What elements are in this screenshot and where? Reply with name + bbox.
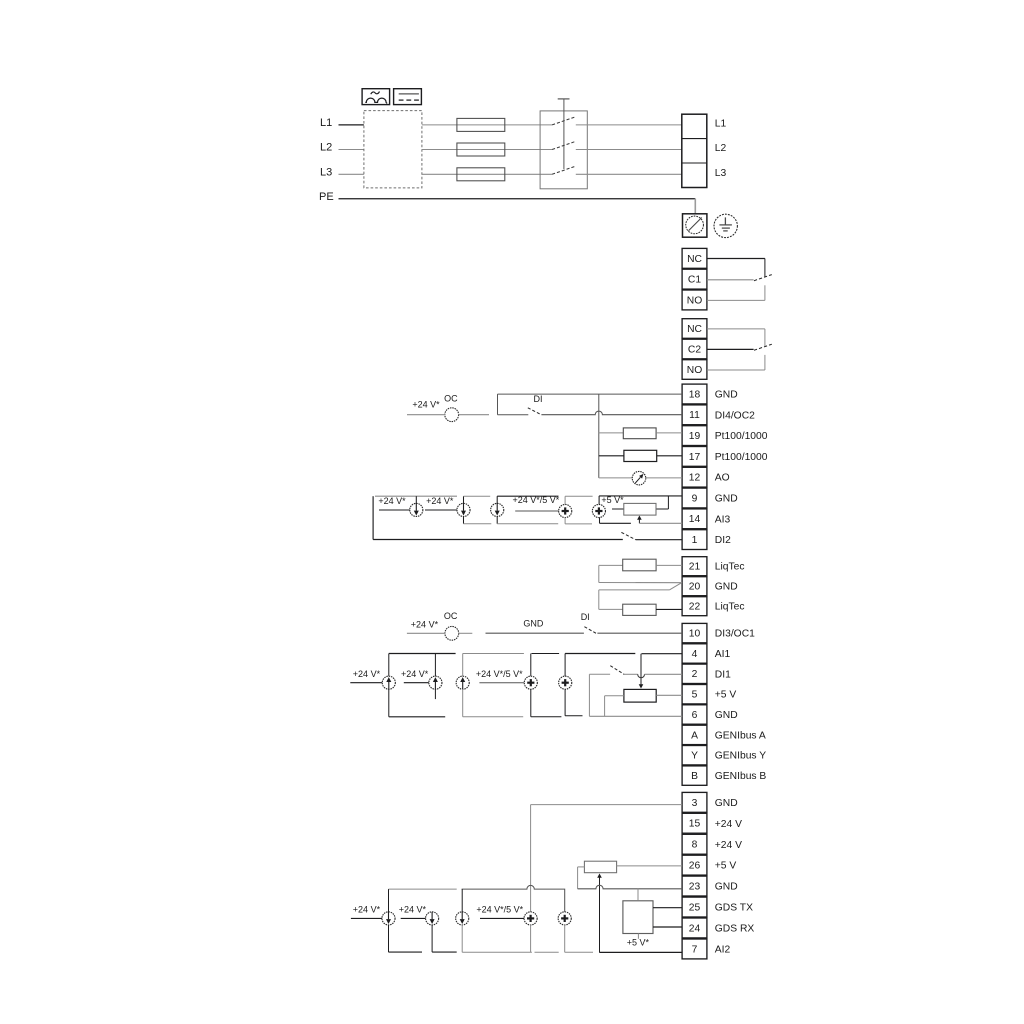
svg-text:GND: GND xyxy=(715,390,738,401)
svg-text:+5 V*: +5 V* xyxy=(627,938,650,948)
svg-text:22: 22 xyxy=(689,602,701,613)
svg-text:GND: GND xyxy=(715,494,738,505)
svg-text:4: 4 xyxy=(692,649,698,660)
svg-text:Y: Y xyxy=(691,751,698,762)
svg-text:+24 V*: +24 V* xyxy=(378,496,406,506)
svg-text:L3: L3 xyxy=(320,167,332,179)
svg-text:19: 19 xyxy=(689,431,701,442)
svg-text:A: A xyxy=(691,730,698,741)
svg-text:6: 6 xyxy=(692,710,698,721)
svg-text:12: 12 xyxy=(689,473,701,484)
svg-text:NO: NO xyxy=(687,365,702,376)
svg-text:GND: GND xyxy=(523,618,544,628)
svg-text:+24 V: +24 V xyxy=(715,840,742,851)
svg-text:2: 2 xyxy=(692,669,698,680)
svg-text:+24 V*/5 V*: +24 V*/5 V* xyxy=(476,669,523,679)
svg-text:+24 V*: +24 V* xyxy=(353,669,381,679)
svg-text:PE: PE xyxy=(319,191,334,203)
svg-text:GND: GND xyxy=(715,710,738,721)
svg-text:10: 10 xyxy=(689,629,701,640)
svg-text:9: 9 xyxy=(692,493,698,504)
svg-text:GND: GND xyxy=(715,798,738,809)
svg-text:LiqTec: LiqTec xyxy=(715,602,745,613)
svg-text:23: 23 xyxy=(689,881,701,892)
svg-text:+24 V*: +24 V* xyxy=(412,399,440,409)
svg-text:GENIbus B: GENIbus B xyxy=(715,771,767,782)
svg-text:AO: AO xyxy=(715,473,730,484)
svg-text:NO: NO xyxy=(687,295,702,306)
svg-text:Pt100/1000: Pt100/1000 xyxy=(715,431,768,442)
svg-text:GENIbus Y: GENIbus Y xyxy=(715,751,766,762)
svg-text:DI1: DI1 xyxy=(715,669,731,680)
svg-text:DI4/OC2: DI4/OC2 xyxy=(715,410,755,421)
svg-text:L1: L1 xyxy=(715,118,727,129)
svg-text:5: 5 xyxy=(692,690,698,701)
svg-text:+24 V*/5 V*: +24 V*/5 V* xyxy=(476,905,523,915)
svg-text:1: 1 xyxy=(692,535,698,546)
svg-text:+24 V*/5 V*: +24 V*/5 V* xyxy=(513,495,560,505)
svg-text:DI3/OC1: DI3/OC1 xyxy=(715,629,755,640)
svg-text:17: 17 xyxy=(689,452,701,463)
svg-text:L1: L1 xyxy=(320,117,332,129)
svg-text:L2: L2 xyxy=(715,143,727,154)
svg-text:NC: NC xyxy=(687,254,702,265)
svg-text:GDS RX: GDS RX xyxy=(715,923,755,934)
svg-text:20: 20 xyxy=(689,582,701,593)
svg-text:AI1: AI1 xyxy=(715,649,731,660)
svg-text:C2: C2 xyxy=(688,344,701,355)
svg-text:14: 14 xyxy=(689,514,701,525)
svg-text:+24 V*: +24 V* xyxy=(426,496,454,506)
svg-text:OC: OC xyxy=(444,611,458,621)
svg-text:25: 25 xyxy=(689,902,701,913)
svg-text:3: 3 xyxy=(692,798,698,809)
svg-text:+24 V: +24 V xyxy=(715,819,742,830)
svg-text:DI2: DI2 xyxy=(715,535,731,546)
svg-text:7: 7 xyxy=(692,944,698,955)
svg-text:+5 V: +5 V xyxy=(715,690,737,701)
svg-text:L3: L3 xyxy=(715,168,727,179)
svg-text:AI2: AI2 xyxy=(715,944,731,955)
svg-text:11: 11 xyxy=(689,410,700,421)
svg-text:NC: NC xyxy=(687,324,702,335)
svg-text:B: B xyxy=(691,771,698,782)
svg-text:24: 24 xyxy=(689,923,701,934)
svg-text:15: 15 xyxy=(689,819,701,830)
svg-text:L2: L2 xyxy=(320,142,332,154)
svg-text:+24 V*: +24 V* xyxy=(353,905,381,915)
svg-text:AI3: AI3 xyxy=(715,514,731,525)
svg-text:8: 8 xyxy=(692,840,698,851)
svg-text:+24 V*: +24 V* xyxy=(399,905,427,915)
svg-text:LiqTec: LiqTec xyxy=(715,562,745,573)
svg-text:GENIbus A: GENIbus A xyxy=(715,730,766,741)
svg-text:GDS TX: GDS TX xyxy=(715,903,753,914)
svg-text:GND: GND xyxy=(715,582,738,593)
svg-text:26: 26 xyxy=(689,861,701,872)
svg-text:+5 V: +5 V xyxy=(715,861,737,872)
svg-text:DI: DI xyxy=(534,394,543,404)
svg-text:OC: OC xyxy=(444,394,458,404)
svg-text:Pt100/1000: Pt100/1000 xyxy=(715,452,768,463)
svg-text:18: 18 xyxy=(689,389,701,400)
svg-text:GND: GND xyxy=(715,882,738,893)
svg-text:+24 V*: +24 V* xyxy=(411,620,439,630)
svg-text:C1: C1 xyxy=(688,275,701,286)
svg-text:+24 V*: +24 V* xyxy=(401,669,429,679)
svg-text:DI: DI xyxy=(581,612,590,622)
svg-text:21: 21 xyxy=(689,562,701,573)
